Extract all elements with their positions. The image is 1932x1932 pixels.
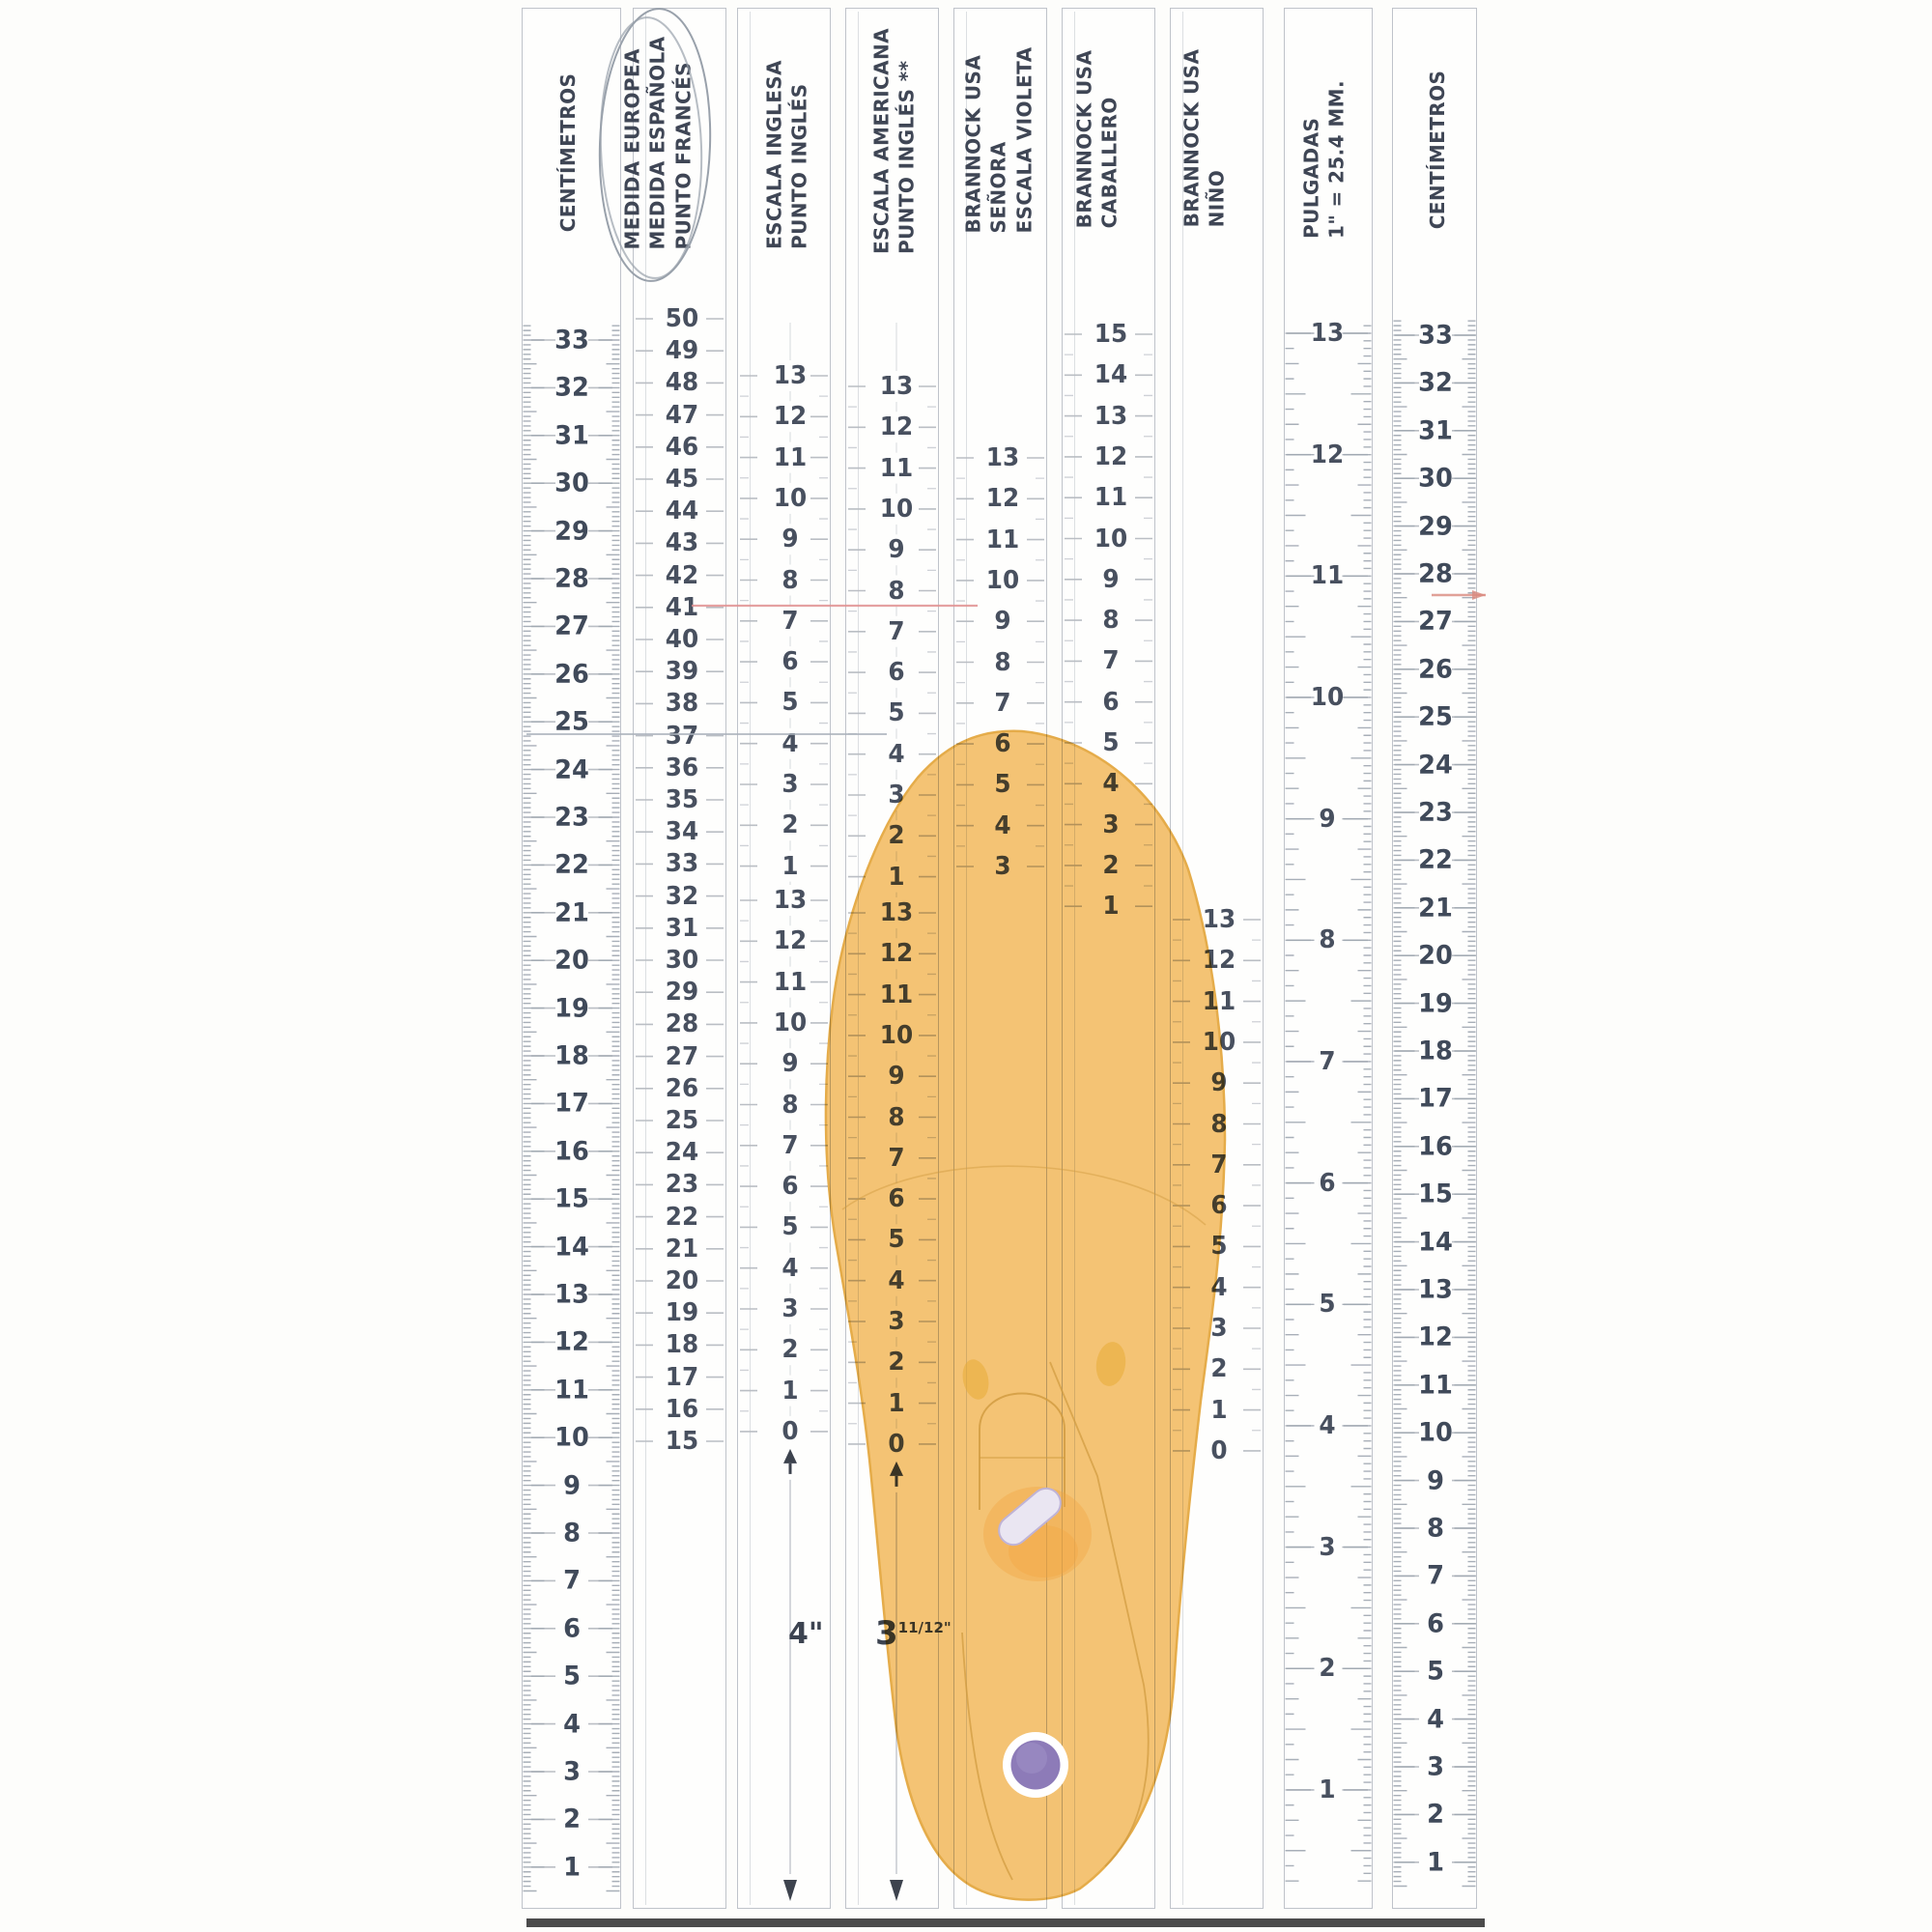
size-label-brannock-nino: 12 (1203, 948, 1236, 973)
size-label-americana: 5 (888, 700, 904, 725)
size-label-americana: 12 (880, 414, 913, 440)
size-label-americana: 1 (888, 865, 904, 890)
cm-label-cm-right: 13 (1418, 1277, 1453, 1303)
size-label-inglesa: 11 (774, 445, 807, 470)
size-label-brannock-caballero: 7 (1102, 648, 1119, 673)
size-label-pulgadas: 4 (1319, 1413, 1335, 1438)
size-label-pulgadas: 8 (1319, 927, 1335, 952)
size-label-inglesa: 13 (774, 363, 807, 388)
size-label-brannock-caballero: 6 (1102, 690, 1119, 715)
size-label-brannock-caballero: 4 (1102, 771, 1119, 796)
cm-label-cm-right: 1 (1427, 1849, 1444, 1875)
cm-label-cm-right: 9 (1427, 1467, 1444, 1493)
cm-label-cm-left: 11 (554, 1377, 589, 1403)
cm-label-cm-right: 25 (1418, 704, 1453, 730)
cm-label-cm-right: 4 (1427, 1706, 1444, 1732)
size-label-americana: 1 (888, 1391, 904, 1416)
size-label-inglesa: 12 (774, 404, 807, 429)
size-label-americana: 13 (880, 374, 913, 399)
size-label-inglesa: 8 (781, 568, 798, 593)
cm-label-cm-right: 11 (1418, 1372, 1453, 1398)
size-label-europea: 35 (666, 787, 698, 812)
size-label-pulgadas: 2 (1319, 1656, 1335, 1681)
size-label-europea: 48 (666, 370, 698, 395)
cm-label-cm-right: 17 (1418, 1086, 1453, 1112)
size-label-pulgadas: 9 (1319, 807, 1335, 832)
size-label-brannock-nino: 1 (1210, 1398, 1227, 1423)
cm-label-cm-right: 18 (1418, 1038, 1453, 1065)
size-label-brannock-nino: 4 (1210, 1275, 1227, 1300)
size-label-europea: 23 (666, 1172, 698, 1197)
size-label-americana: 0 (888, 1432, 904, 1457)
scale-numbers-layer: 3332313029282726252423222120191817161514… (0, 0, 1932, 1932)
cm-label-cm-left: 28 (554, 566, 589, 592)
cm-label-cm-right: 32 (1418, 370, 1453, 396)
size-label-inglesa: 9 (781, 1051, 798, 1076)
size-label-europea: 49 (666, 338, 698, 363)
size-label-brannock-senora: 11 (986, 527, 1019, 553)
size-label-europea: 22 (666, 1205, 698, 1230)
size-label-europea: 43 (666, 530, 698, 555)
size-label-brannock-nino: 8 (1210, 1112, 1227, 1137)
size-label-europea: 37 (666, 724, 698, 749)
cm-label-cm-left: 25 (554, 709, 589, 735)
size-label-europea: 25 (666, 1108, 698, 1133)
arch-length-english-label: 4" (788, 1617, 824, 1651)
size-label-pulgadas: 3 (1319, 1535, 1335, 1560)
size-label-europea: 40 (666, 627, 698, 652)
size-label-americana: 7 (888, 1146, 904, 1171)
cm-label-cm-right: 19 (1418, 990, 1453, 1016)
size-label-inglesa: 13 (774, 888, 807, 913)
size-label-brannock-nino: 10 (1203, 1030, 1236, 1055)
cm-label-cm-left: 12 (554, 1329, 589, 1355)
size-label-inglesa: 3 (781, 772, 798, 797)
cm-label-cm-right: 3 (1427, 1754, 1444, 1780)
size-label-inglesa: 5 (781, 690, 798, 715)
size-label-europea: 19 (666, 1300, 698, 1325)
size-label-brannock-senora: 12 (986, 486, 1019, 511)
cm-label-cm-left: 18 (554, 1043, 589, 1069)
size-label-americana: 2 (888, 823, 904, 848)
size-label-europea: 45 (666, 467, 698, 492)
size-label-inglesa: 2 (781, 812, 798, 838)
cm-label-cm-left: 16 (554, 1138, 589, 1164)
cm-label-cm-left: 6 (563, 1615, 581, 1641)
cm-label-cm-right: 23 (1418, 800, 1453, 826)
size-label-americana: 11 (880, 982, 913, 1008)
cm-label-cm-left: 1 (563, 1854, 581, 1880)
size-label-brannock-nino: 3 (1210, 1316, 1227, 1341)
cm-label-cm-left: 23 (554, 805, 589, 831)
cm-label-cm-right: 5 (1427, 1659, 1444, 1685)
size-label-americana: 3 (888, 782, 904, 808)
size-label-brannock-caballero: 12 (1094, 444, 1127, 469)
size-label-europea: 20 (666, 1268, 698, 1293)
size-label-americana: 6 (888, 1186, 904, 1211)
size-label-inglesa: 10 (774, 1010, 807, 1036)
size-label-pulgadas: 12 (1311, 442, 1344, 468)
size-label-europea: 46 (666, 435, 698, 460)
cm-label-cm-right: 6 (1427, 1610, 1444, 1636)
size-label-europea: 33 (666, 851, 698, 876)
size-label-inglesa: 12 (774, 928, 807, 953)
size-label-americana: 4 (888, 742, 904, 767)
cm-label-cm-right: 20 (1418, 943, 1453, 969)
size-label-brannock-senora: 6 (994, 731, 1010, 756)
size-label-brannock-senora: 9 (994, 609, 1010, 634)
size-label-inglesa: 7 (781, 1133, 798, 1158)
cm-label-cm-left: 13 (554, 1282, 589, 1308)
size-label-americana: 2 (888, 1350, 904, 1375)
cm-label-cm-left: 32 (554, 375, 589, 401)
size-label-inglesa: 1 (781, 1378, 798, 1404)
size-label-pulgadas: 7 (1319, 1049, 1335, 1074)
cm-label-cm-right: 8 (1427, 1516, 1444, 1542)
cm-label-cm-right: 10 (1418, 1420, 1453, 1446)
size-label-inglesa: 1 (781, 854, 798, 879)
cm-label-cm-left: 17 (554, 1091, 589, 1117)
size-label-europea: 30 (666, 948, 698, 973)
size-label-brannock-caballero: 5 (1102, 730, 1119, 755)
size-label-europea: 24 (666, 1140, 698, 1165)
size-label-brannock-caballero: 14 (1094, 362, 1127, 387)
cm-label-cm-right: 14 (1418, 1229, 1453, 1255)
size-label-brannock-nino: 5 (1210, 1234, 1227, 1259)
size-label-brannock-caballero: 11 (1094, 485, 1127, 510)
arch-length-american-fraction: 11/12" (898, 1619, 952, 1636)
size-label-americana: 4 (888, 1268, 904, 1293)
cm-label-cm-left: 21 (554, 899, 589, 925)
size-label-europea: 17 (666, 1365, 698, 1390)
arch-length-american-label: 311/12" (875, 1614, 952, 1653)
cm-label-cm-right: 26 (1418, 656, 1453, 682)
cm-label-cm-right: 31 (1418, 417, 1453, 443)
cm-label-cm-right: 33 (1418, 323, 1453, 349)
size-label-brannock-caballero: 1 (1102, 894, 1119, 919)
cm-label-cm-left: 3 (563, 1759, 581, 1785)
size-label-inglesa: 4 (781, 731, 798, 756)
size-label-europea: 31 (666, 916, 698, 941)
cm-label-cm-left: 14 (554, 1234, 589, 1260)
size-label-brannock-nino: 13 (1203, 907, 1236, 932)
cm-label-cm-left: 33 (554, 327, 589, 354)
cm-label-cm-left: 10 (554, 1425, 589, 1451)
size-label-inglesa: 5 (781, 1214, 798, 1239)
size-label-americana: 8 (888, 1105, 904, 1130)
size-label-americana: 3 (888, 1309, 904, 1334)
cm-label-cm-left: 2 (563, 1806, 581, 1833)
size-label-europea: 44 (666, 498, 698, 524)
size-label-pulgadas: 10 (1311, 685, 1344, 710)
size-label-brannock-nino: 7 (1210, 1152, 1227, 1178)
size-label-europea: 18 (666, 1332, 698, 1357)
cm-label-cm-left: 29 (554, 518, 589, 544)
size-label-americana: 7 (888, 619, 904, 644)
size-label-brannock-nino: 2 (1210, 1356, 1227, 1381)
size-label-brannock-nino: 9 (1210, 1070, 1227, 1095)
size-label-brannock-senora: 4 (994, 813, 1010, 838)
size-label-europea: 28 (666, 1011, 698, 1037)
size-label-inglesa: 3 (781, 1296, 798, 1321)
size-label-europea: 38 (666, 691, 698, 716)
size-label-inglesa: 0 (781, 1419, 798, 1444)
size-label-brannock-caballero: 10 (1094, 526, 1127, 552)
size-label-inglesa: 2 (781, 1337, 798, 1362)
cm-label-cm-left: 8 (563, 1520, 581, 1547)
cm-label-cm-right: 22 (1418, 847, 1453, 873)
size-label-brannock-caballero: 2 (1102, 853, 1119, 878)
size-label-americana: 12 (880, 941, 913, 966)
size-label-americana: 10 (880, 1023, 913, 1048)
size-label-europea: 27 (666, 1044, 698, 1069)
size-label-brannock-senora: 13 (986, 445, 1019, 470)
arch-length-american-base: 3 (875, 1614, 898, 1653)
size-label-europea: 29 (666, 980, 698, 1005)
cm-label-cm-right: 2 (1427, 1802, 1444, 1828)
size-label-europea: 26 (666, 1076, 698, 1101)
size-label-inglesa: 11 (774, 970, 807, 995)
shoe-size-measuring-sheet: 3332313029282726252423222120191817161514… (0, 0, 1932, 1932)
size-label-europea: 39 (666, 659, 698, 684)
cm-label-cm-left: 5 (563, 1663, 581, 1690)
size-label-americana: 13 (880, 900, 913, 925)
size-label-inglesa: 10 (774, 486, 807, 511)
size-label-pulgadas: 6 (1319, 1171, 1335, 1196)
size-label-brannock-nino: 11 (1203, 989, 1236, 1014)
size-label-americana: 11 (880, 456, 913, 481)
cm-label-cm-right: 12 (1418, 1324, 1453, 1350)
size-label-europea: 32 (666, 884, 698, 909)
size-label-brannock-caballero: 9 (1102, 567, 1119, 592)
size-label-inglesa: 8 (781, 1093, 798, 1118)
size-label-europea: 41 (666, 595, 698, 620)
size-label-europea: 50 (666, 306, 698, 331)
size-label-brannock-nino: 0 (1210, 1438, 1227, 1463)
size-label-brannock-senora: 8 (994, 650, 1010, 675)
cm-label-cm-right: 15 (1418, 1181, 1453, 1207)
size-label-brannock-senora: 10 (986, 568, 1019, 593)
cm-label-cm-left: 24 (554, 756, 589, 782)
size-label-americana: 8 (888, 579, 904, 604)
cm-label-cm-right: 27 (1418, 609, 1453, 635)
size-label-brannock-caballero: 8 (1102, 608, 1119, 633)
size-label-pulgadas: 5 (1319, 1292, 1335, 1317)
size-label-europea: 42 (666, 563, 698, 588)
size-label-europea: 15 (666, 1429, 698, 1454)
size-label-europea: 34 (666, 819, 698, 844)
cm-label-cm-left: 4 (563, 1711, 581, 1737)
size-label-americana: 9 (888, 537, 904, 562)
size-label-inglesa: 6 (781, 649, 798, 674)
size-label-inglesa: 6 (781, 1174, 798, 1199)
size-label-inglesa: 9 (781, 526, 798, 552)
cm-label-cm-right: 16 (1418, 1133, 1453, 1159)
size-label-europea: 16 (666, 1397, 698, 1422)
cm-label-cm-left: 15 (554, 1186, 589, 1212)
cm-label-cm-right: 7 (1427, 1563, 1444, 1589)
size-label-brannock-caballero: 15 (1094, 322, 1127, 347)
size-label-americana: 9 (888, 1064, 904, 1089)
cm-label-cm-left: 31 (554, 422, 589, 448)
cm-label-cm-left: 27 (554, 613, 589, 639)
cm-label-cm-left: 26 (554, 661, 589, 687)
cm-label-cm-left: 20 (554, 948, 589, 974)
size-label-europea: 36 (666, 755, 698, 781)
size-label-europea: 21 (666, 1236, 698, 1262)
size-label-inglesa: 7 (781, 609, 798, 634)
size-label-pulgadas: 11 (1311, 563, 1344, 588)
size-label-brannock-caballero: 13 (1094, 404, 1127, 429)
cm-label-cm-left: 9 (563, 1472, 581, 1498)
cm-label-cm-right: 28 (1418, 561, 1453, 587)
size-label-inglesa: 4 (781, 1256, 798, 1281)
size-label-americana: 10 (880, 497, 913, 522)
cm-label-cm-left: 7 (563, 1568, 581, 1594)
size-label-pulgadas: 13 (1311, 321, 1344, 346)
cm-label-cm-left: 22 (554, 852, 589, 878)
size-label-americana: 6 (888, 660, 904, 685)
size-label-americana: 5 (888, 1227, 904, 1252)
cm-label-cm-right: 30 (1418, 466, 1453, 492)
size-label-brannock-caballero: 3 (1102, 812, 1119, 838)
cm-label-cm-right: 24 (1418, 752, 1453, 778)
size-label-brannock-nino: 6 (1210, 1193, 1227, 1218)
size-label-europea: 47 (666, 403, 698, 428)
size-label-brannock-senora: 5 (994, 772, 1010, 797)
cm-label-cm-right: 29 (1418, 513, 1453, 539)
cm-label-cm-left: 19 (554, 995, 589, 1021)
size-label-brannock-senora: 7 (994, 691, 1010, 716)
cm-label-cm-right: 21 (1418, 895, 1453, 921)
size-label-pulgadas: 1 (1319, 1777, 1335, 1803)
cm-label-cm-left: 30 (554, 470, 589, 497)
size-label-brannock-senora: 3 (994, 854, 1010, 879)
